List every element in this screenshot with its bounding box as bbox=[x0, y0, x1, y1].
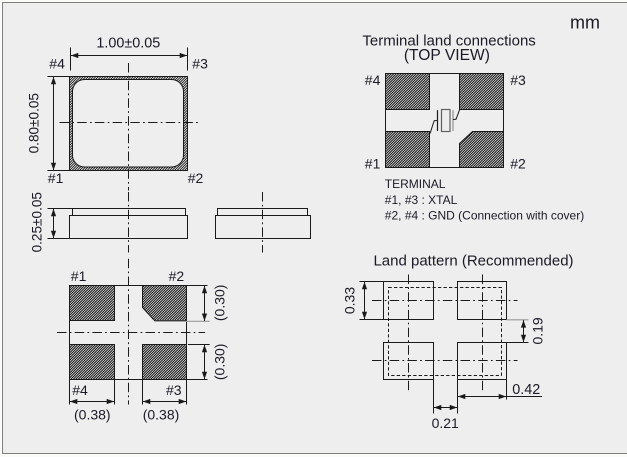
svg-text:#1: #1 bbox=[71, 268, 87, 284]
svg-text:#4: #4 bbox=[49, 56, 65, 72]
svg-text:0.21: 0.21 bbox=[432, 415, 459, 431]
svg-text:#3: #3 bbox=[166, 382, 182, 398]
svg-text:Land pattern (Recommended): Land pattern (Recommended) bbox=[373, 253, 573, 270]
svg-text:#2: #2 bbox=[169, 268, 185, 284]
svg-text:(0.38): (0.38) bbox=[74, 406, 111, 422]
svg-text:mm: mm bbox=[570, 13, 600, 33]
svg-text:#1: #1 bbox=[365, 156, 381, 172]
svg-text:TERMINAL: TERMINAL bbox=[385, 177, 446, 191]
svg-text:0.80±0.05: 0.80±0.05 bbox=[26, 93, 41, 153]
svg-text:(0.30): (0.30) bbox=[212, 344, 228, 381]
svg-text:(0.38): (0.38) bbox=[143, 406, 180, 422]
svg-text:0.19: 0.19 bbox=[529, 317, 545, 344]
svg-text:0.42: 0.42 bbox=[512, 382, 540, 398]
svg-text:#3: #3 bbox=[510, 72, 526, 88]
svg-text:#1, #3 : XTAL: #1, #3 : XTAL bbox=[385, 193, 458, 207]
svg-text:#2: #2 bbox=[188, 170, 204, 186]
svg-text:1.00±0.05: 1.00±0.05 bbox=[96, 36, 160, 52]
svg-text:0.25±0.05: 0.25±0.05 bbox=[29, 192, 44, 252]
svg-text:#2: #2 bbox=[510, 156, 526, 172]
svg-text:#4: #4 bbox=[365, 72, 381, 88]
svg-text:#2, #4 : GND (Connection with: #2, #4 : GND (Connection with cover) bbox=[385, 209, 584, 223]
svg-text:(0.30): (0.30) bbox=[212, 285, 228, 322]
svg-text:0.33: 0.33 bbox=[342, 287, 358, 314]
svg-text:(TOP VIEW): (TOP VIEW) bbox=[404, 47, 490, 64]
svg-text:#4: #4 bbox=[72, 382, 88, 398]
svg-text:#1: #1 bbox=[48, 170, 64, 186]
svg-text:#3: #3 bbox=[192, 56, 208, 72]
